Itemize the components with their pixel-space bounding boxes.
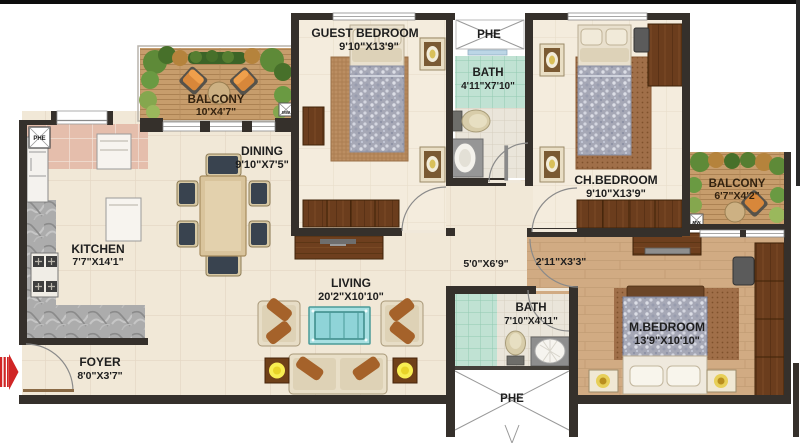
svg-text:GUEST BEDROOM: GUEST BEDROOM [311, 26, 418, 40]
svg-text:9'10"X7'5": 9'10"X7'5" [235, 159, 289, 171]
svg-text:KITCHEN: KITCHEN [71, 242, 124, 256]
svg-text:2'11"X3'3": 2'11"X3'3" [536, 256, 587, 268]
svg-text:9'10"X13'9": 9'10"X13'9" [586, 188, 646, 200]
svg-text:7'7"X14'1": 7'7"X14'1" [72, 256, 123, 268]
svg-text:M.BEDROOM: M.BEDROOM [629, 320, 705, 334]
svg-text:PHE: PHE [500, 393, 524, 405]
svg-text:20'2"X10'10": 20'2"X10'10" [318, 291, 384, 303]
svg-text:DINING: DINING [241, 144, 283, 158]
svg-text:LIVING: LIVING [331, 276, 371, 290]
svg-text:BALCONY: BALCONY [188, 94, 245, 106]
svg-text:PHE: PHE [33, 136, 45, 142]
svg-text:4'11"X7'10": 4'11"X7'10" [461, 81, 515, 92]
svg-text:6'7"X4'2": 6'7"X4'2" [714, 190, 759, 202]
svg-text:BALCONY: BALCONY [709, 178, 766, 190]
svg-text:13'9"X10'10": 13'9"X10'10" [634, 335, 700, 347]
svg-text:FOYER: FOYER [79, 355, 121, 369]
svg-text:BATH: BATH [472, 67, 503, 79]
svg-text:CH.BEDROOM: CH.BEDROOM [574, 173, 657, 187]
svg-text:5'0"X6'9": 5'0"X6'9" [463, 258, 508, 270]
svg-text:9'10"X13'9": 9'10"X13'9" [339, 41, 399, 53]
svg-text:8'0"X3'7": 8'0"X3'7" [77, 370, 122, 382]
svg-text:10'X4'7": 10'X4'7" [196, 106, 236, 118]
svg-text:MW: MW [282, 110, 291, 115]
svg-text:BATH: BATH [515, 302, 546, 314]
svg-text:7'10"X4'11": 7'10"X4'11" [504, 316, 558, 327]
svg-text:PHE: PHE [477, 29, 501, 41]
